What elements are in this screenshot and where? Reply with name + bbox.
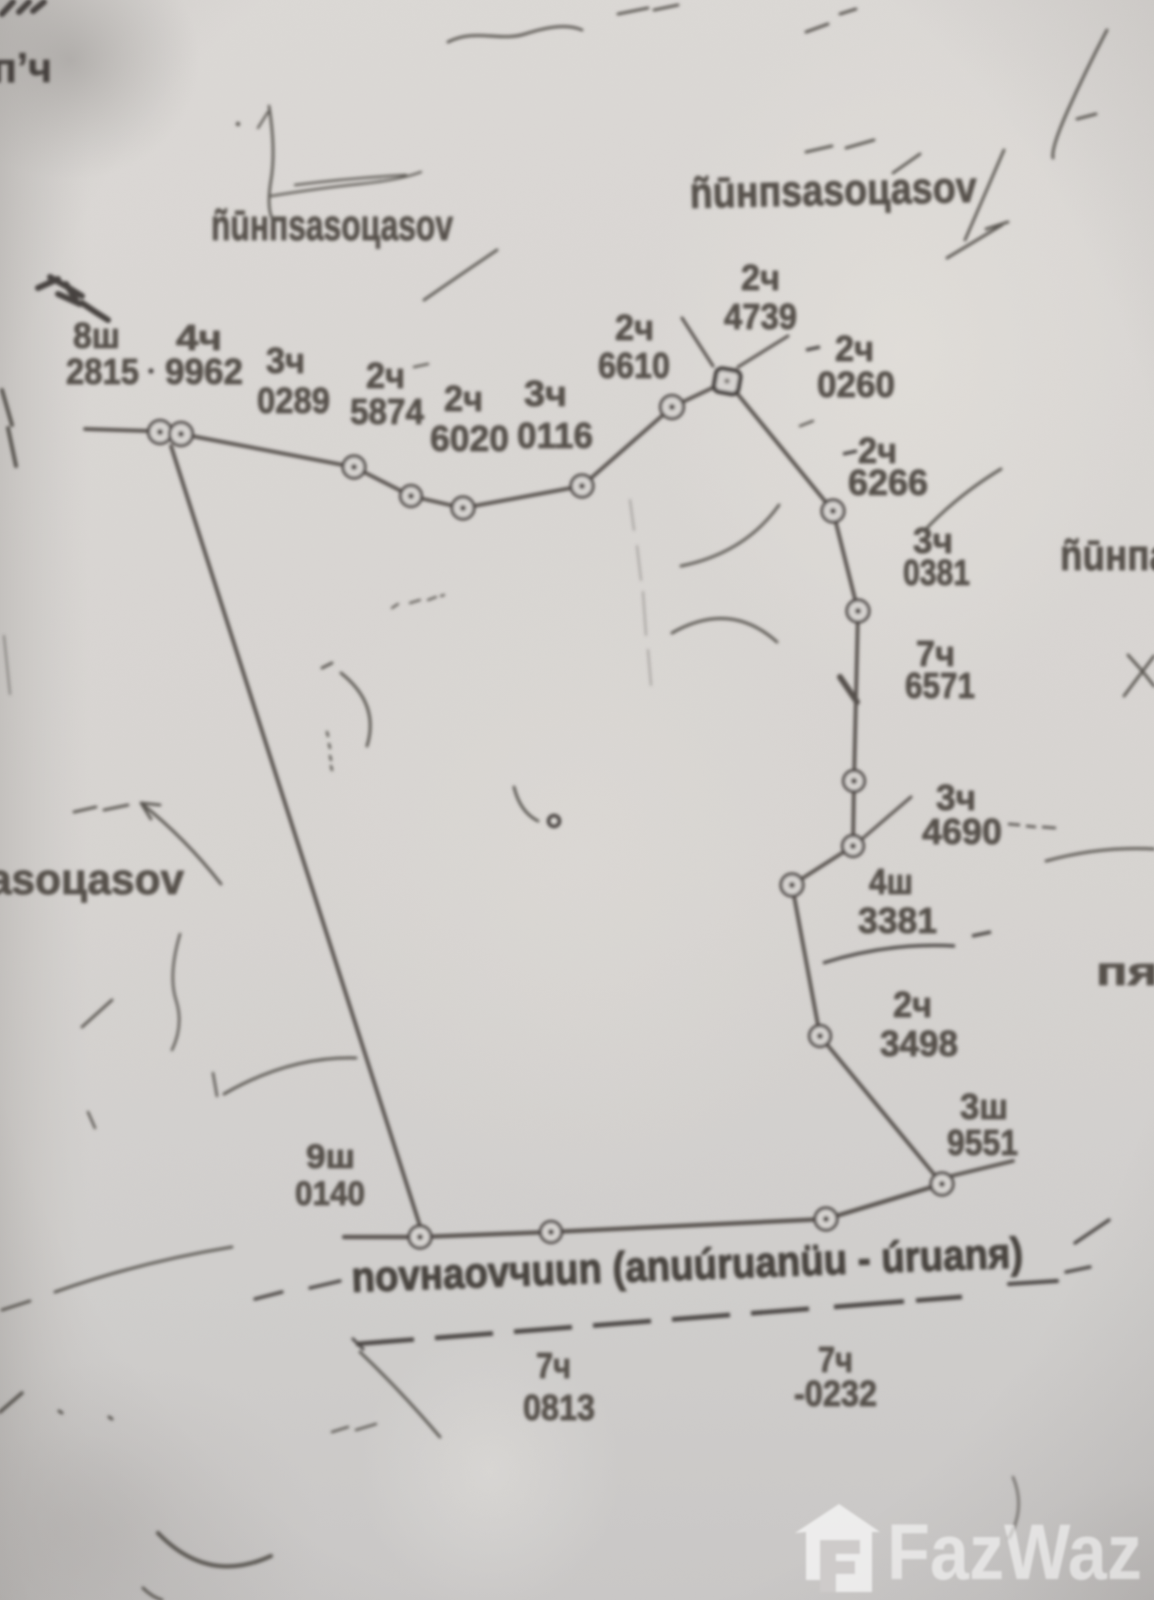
svg-text:FazWaz: FazWaz bbox=[887, 1507, 1142, 1596]
